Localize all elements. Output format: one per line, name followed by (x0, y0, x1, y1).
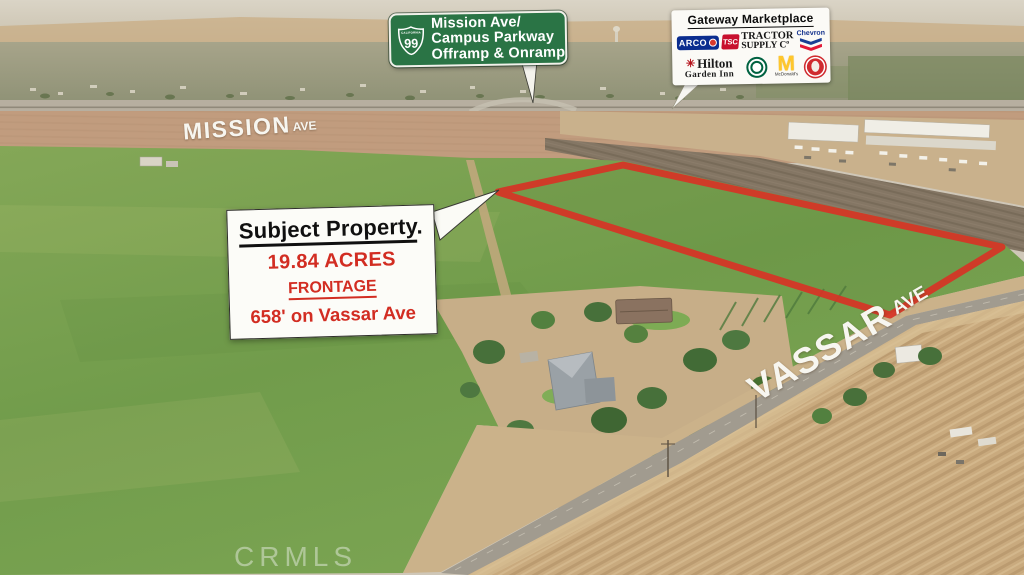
starbucks-logo-icon (746, 57, 767, 78)
panda-express-logo-icon (805, 56, 825, 76)
frontage-label: FRONTAGE (233, 276, 431, 300)
mcdonalds-label: McDonald's (772, 72, 800, 77)
shield-route-number: 99 (404, 35, 418, 50)
shield-state-name: CALIFORNIA (401, 30, 422, 34)
crmls-watermark: CRMLS (234, 541, 357, 573)
chevron-logo: Chevron (797, 30, 825, 51)
tsc-badge-icon: TSC (722, 34, 740, 49)
chevron-blue-stripe-icon (800, 38, 822, 45)
mcdonalds-logo: M McDonald's (772, 56, 800, 77)
acreage-text: 19.84 ACRES (232, 247, 431, 276)
gateway-marketplace-title: Gateway Marketplace (676, 11, 824, 28)
chevron-label: Chevron (797, 30, 826, 37)
arco-spark-icon (709, 38, 717, 46)
subject-property-callout: Subject Property. 19.84 ACRES FRONTAGE 6… (226, 204, 438, 340)
tractor-supply-logo: TSC TRACTOR SUPPLY Cº (722, 31, 794, 51)
hilton-garden-inn-logo: ✳ Hilton Garden Inn (677, 57, 741, 79)
hilton-line2: Garden Inn (685, 69, 734, 79)
sign-line-3: Offramp & Onramp (431, 45, 565, 63)
tractor-supply-line2: SUPPLY Cº (741, 41, 793, 51)
subject-property-title: Subject Property. (231, 213, 430, 245)
farm-house-brown (616, 298, 673, 324)
frontage-value: 658' on Vassar Ave (234, 301, 433, 329)
title-period: . (416, 213, 423, 238)
listing-photo: CALIFORNIA 99 Mission Ave/ Campus Parkwa… (0, 0, 1024, 575)
highway-guide-sign: CALIFORNIA 99 Mission Ave/ Campus Parkwa… (389, 10, 568, 67)
gateway-marketplace-callout: Gateway Marketplace ARCO TSC TRACTOR SUP… (671, 8, 830, 86)
ca-route-99-shield: CALIFORNIA 99 (397, 24, 426, 55)
arco-logo: ARCO (677, 35, 719, 50)
mcdonalds-arches-icon: M (772, 56, 800, 72)
aerial-photo (0, 0, 1024, 575)
arco-label: ARCO (679, 37, 707, 47)
mission-ave-suffix: AVE (292, 118, 317, 134)
